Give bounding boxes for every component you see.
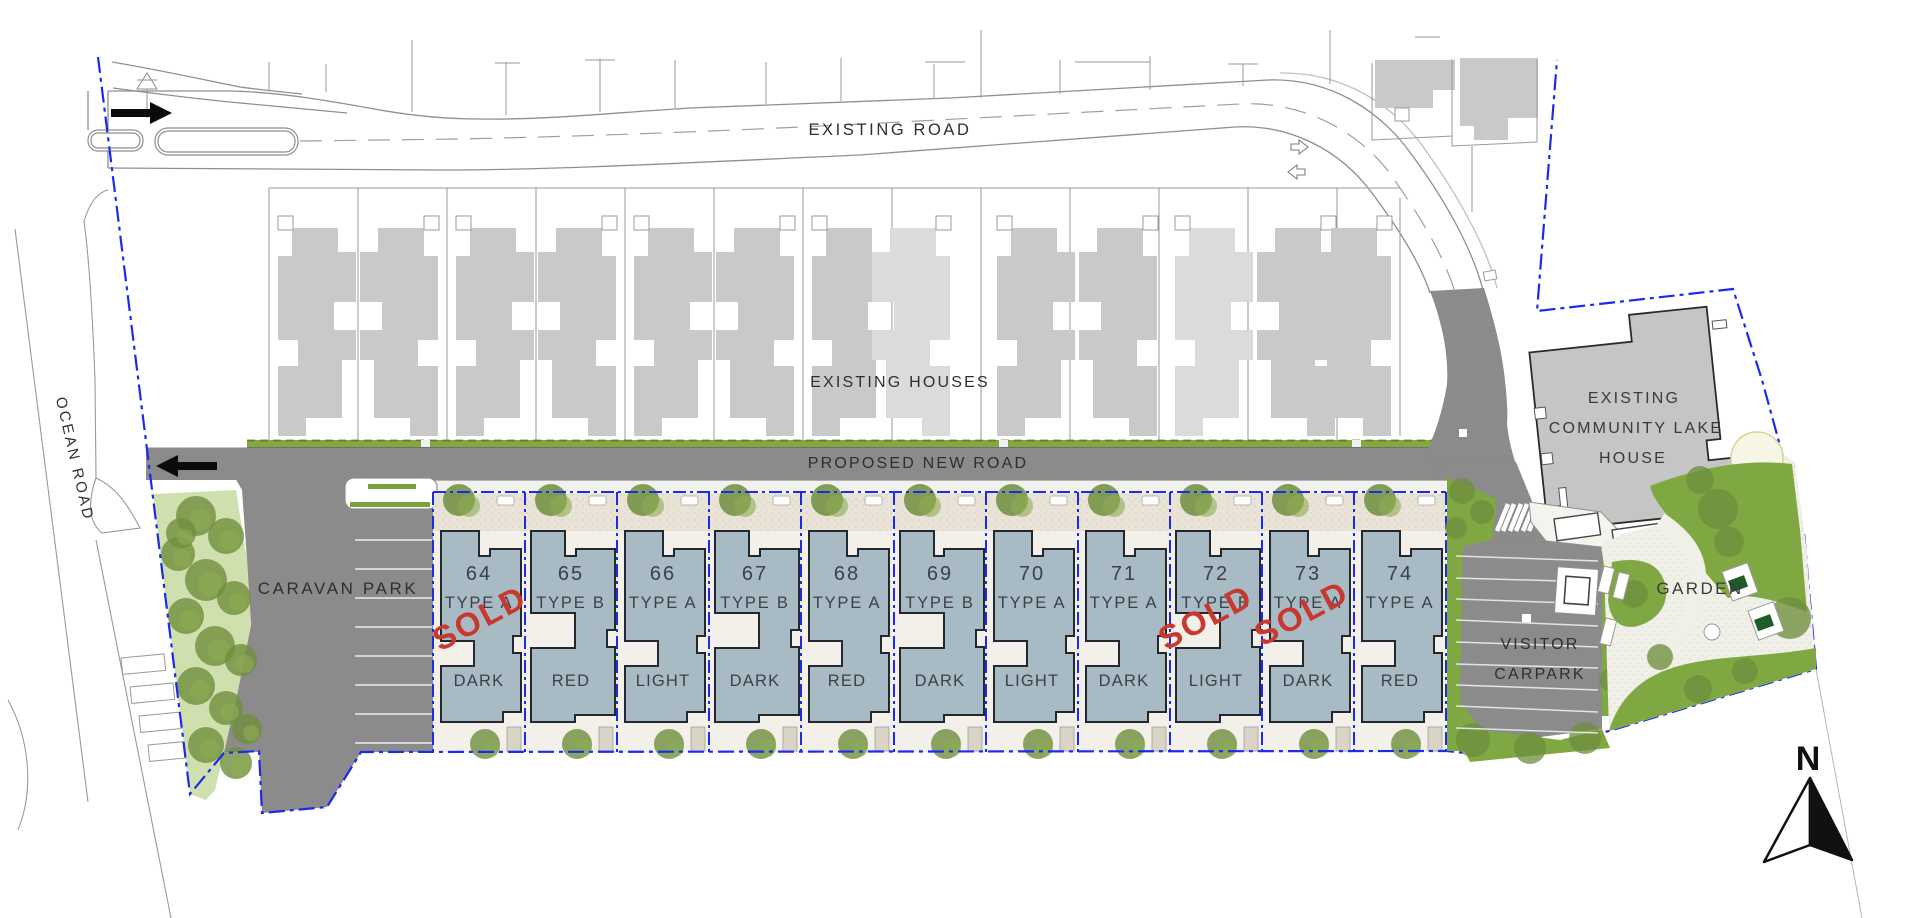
svg-text:TYPE B: TYPE B — [536, 594, 606, 612]
svg-text:RED: RED — [828, 672, 866, 690]
svg-text:CARAVAN PARK: CARAVAN PARK — [258, 579, 419, 598]
svg-text:EXISTING: EXISTING — [1588, 390, 1680, 407]
svg-text:EXISTING ROAD: EXISTING ROAD — [808, 121, 971, 139]
svg-text:N: N — [1796, 740, 1821, 778]
svg-text:DARK: DARK — [915, 672, 966, 690]
svg-text:DARK: DARK — [1283, 672, 1334, 690]
svg-text:68: 68 — [834, 563, 860, 585]
svg-text:74: 74 — [1387, 563, 1413, 585]
svg-text:LIGHT: LIGHT — [1005, 672, 1060, 690]
svg-text:HOUSE: HOUSE — [1599, 450, 1667, 467]
svg-text:GARDEN: GARDEN — [1656, 579, 1743, 598]
svg-text:LIGHT: LIGHT — [636, 672, 691, 690]
svg-text:64: 64 — [466, 563, 492, 585]
svg-text:LIGHT: LIGHT — [1189, 672, 1244, 690]
svg-text:COMMUNITY LAKE: COMMUNITY LAKE — [1549, 420, 1724, 437]
svg-text:DARK: DARK — [730, 672, 781, 690]
svg-text:71: 71 — [1111, 563, 1137, 585]
svg-text:69: 69 — [927, 563, 953, 585]
svg-text:TYPE B: TYPE B — [720, 594, 790, 612]
svg-text:TYPE A: TYPE A — [629, 594, 698, 612]
svg-text:TYPE A: TYPE A — [1090, 594, 1159, 612]
svg-text:RED: RED — [1381, 672, 1419, 690]
svg-text:CARPARK: CARPARK — [1494, 666, 1586, 683]
svg-text:TYPE B: TYPE B — [905, 594, 975, 612]
svg-text:65: 65 — [558, 563, 584, 585]
svg-text:EXISTING HOUSES: EXISTING HOUSES — [810, 374, 990, 391]
svg-text:DARK: DARK — [454, 672, 505, 690]
svg-text:70: 70 — [1019, 563, 1045, 585]
svg-text:72: 72 — [1203, 563, 1229, 585]
svg-text:TYPE A: TYPE A — [813, 594, 882, 612]
svg-text:66: 66 — [650, 563, 676, 585]
svg-text:RED: RED — [552, 672, 590, 690]
svg-text:TYPE A: TYPE A — [1366, 594, 1435, 612]
svg-text:PROPOSED NEW ROAD: PROPOSED NEW ROAD — [808, 455, 1029, 472]
svg-text:VISITOR: VISITOR — [1500, 636, 1579, 653]
svg-text:TYPE A: TYPE A — [998, 594, 1067, 612]
svg-text:73: 73 — [1295, 563, 1321, 585]
svg-text:67: 67 — [742, 563, 768, 585]
svg-text:DARK: DARK — [1099, 672, 1150, 690]
